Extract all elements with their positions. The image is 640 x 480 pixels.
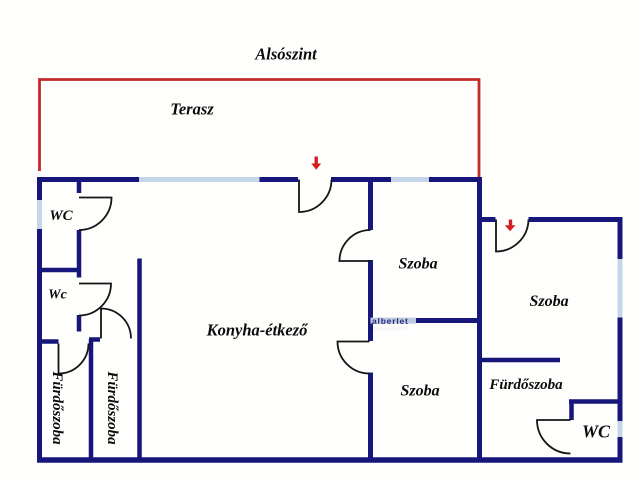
svg-text:Fürdőszoba: Fürdőszoba xyxy=(49,370,65,445)
svg-text:Szoba: Szoba xyxy=(398,256,437,273)
svg-text:Fürdőszoba: Fürdőszoba xyxy=(488,377,563,393)
svg-text:alberlet: alberlet xyxy=(372,316,409,326)
svg-text:Wc: Wc xyxy=(48,288,67,303)
svg-text:Szoba: Szoba xyxy=(400,383,439,400)
svg-text:www.alberlet: www.alberlet xyxy=(372,327,407,333)
svg-text:WC: WC xyxy=(582,422,611,442)
svg-text:Fürdőszoba: Fürdőszoba xyxy=(104,370,120,445)
svg-text:Alsószint: Alsószint xyxy=(254,45,317,64)
svg-text:WC: WC xyxy=(49,208,73,224)
svg-text:Terasz: Terasz xyxy=(170,100,214,119)
svg-text:Konyha-étkező: Konyha-étkező xyxy=(206,321,310,340)
svg-text:Szoba: Szoba xyxy=(529,293,568,310)
